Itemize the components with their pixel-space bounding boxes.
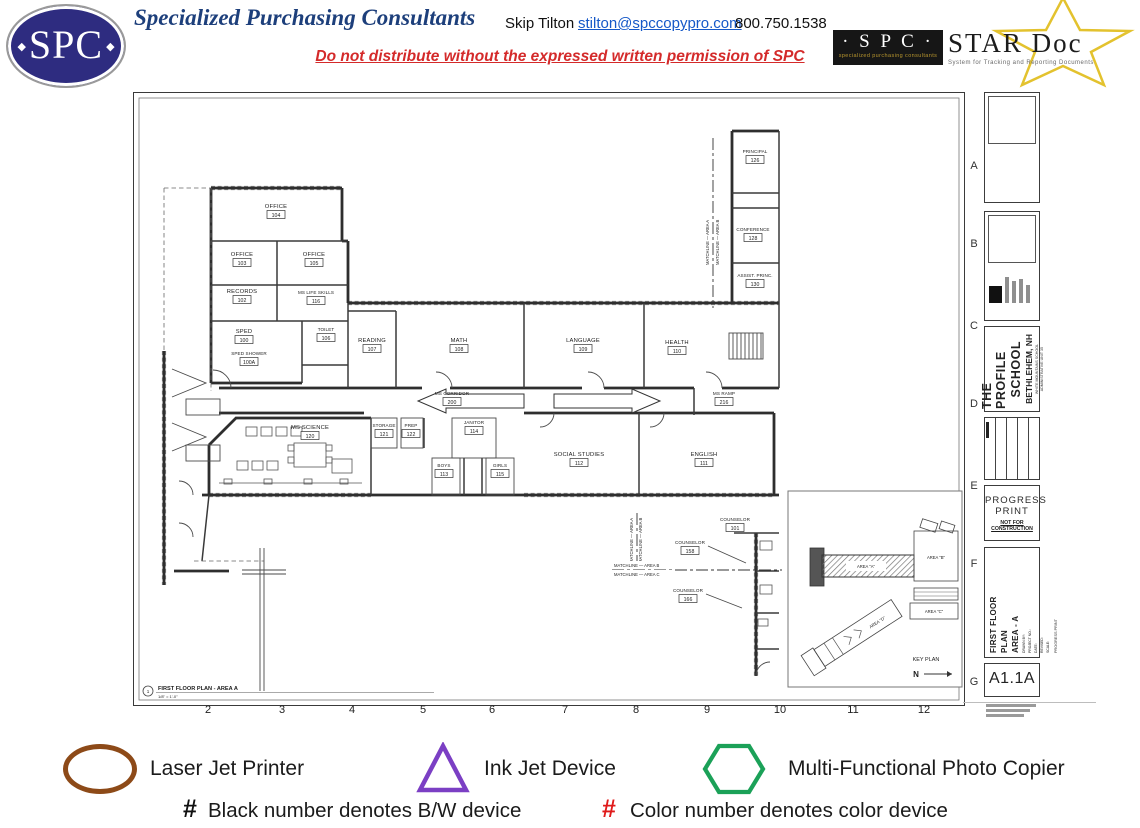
legend-label-laser: Laser Jet Printer [150, 757, 304, 781]
ruler-number: 3 [272, 704, 292, 716]
svg-text:115: 115 [496, 472, 504, 478]
titleblock-project-box: THE PROFILE SCHOOL BETHLEHEM, NH WHITE M… [984, 326, 1040, 412]
project-name-line1: THE PROFILE [980, 329, 1008, 409]
detail-number: 1 [147, 689, 150, 694]
room-labels: OFFICE104 OFFICE103 OFFICE105 RECORDS102… [227, 149, 773, 603]
ruler-number: 4 [342, 704, 362, 716]
room-label: LANGUAGE109 [566, 338, 600, 353]
svg-text:102: 102 [238, 298, 247, 304]
north-label: N [913, 670, 919, 679]
project-name-line2: SCHOOL [1009, 341, 1023, 397]
laser-jet-oval-icon [63, 744, 137, 794]
svg-text:100A: 100A [243, 360, 256, 366]
svg-text:166: 166 [684, 597, 693, 603]
grid-letter: G [966, 676, 982, 688]
svg-text:130: 130 [751, 282, 760, 288]
footer-smudge [986, 704, 1036, 707]
titleblock-stamp-box [984, 92, 1040, 203]
svg-text:101: 101 [731, 526, 740, 532]
svg-text:100: 100 [240, 338, 249, 344]
footer-smudge [986, 714, 1024, 717]
title-block: THE PROFILE SCHOOL BETHLEHEM, NH WHITE M… [984, 92, 1042, 714]
field-scale: SCALE: [1046, 552, 1050, 653]
room-label: ENGLISH111 [691, 452, 718, 467]
room-label: JANITOR114 [464, 420, 485, 435]
architect-text-smudge [1019, 279, 1023, 303]
contact-name: Skip Tilton [505, 15, 574, 32]
stardoc-subtitle: System for Tracking and Reporting Docume… [948, 60, 1094, 66]
stardoc-title: STAR Doc [948, 28, 1083, 59]
svg-text:MS LIFE SKILLS: MS LIFE SKILLS [298, 290, 334, 295]
svg-text:122: 122 [407, 432, 416, 438]
architect-text-smudge [1005, 277, 1009, 303]
key-plan-area-c: AREA "C" [925, 609, 944, 614]
plan-scale: 1/8" = 1'-0" [158, 694, 178, 699]
matchline-label: MATCHLINE — AREA B [638, 517, 643, 563]
svg-text:128: 128 [749, 236, 758, 242]
color-note-text: Color number denotes color device [630, 799, 948, 823]
legend-label-inkjet: Ink Jet Device [484, 757, 616, 781]
titleblock-revisions-box [984, 417, 1040, 480]
plan-title: FIRST FLOOR PLAN - AREA A [158, 686, 238, 692]
svg-text:OFFICE: OFFICE [303, 252, 325, 258]
matchline-label: MATCHLINE — AREA B [614, 563, 660, 568]
sheet-title-line1: FIRST FLOOR [989, 552, 998, 653]
sheet-title-strip: 1 FIRST FLOOR PLAN - AREA A 1/8" = 1'-0" [143, 686, 434, 699]
svg-text:106: 106 [322, 336, 331, 342]
room-label: RECORDS102 [227, 289, 257, 304]
ruler-number: 8 [626, 704, 646, 716]
ruler-number: 11 [843, 704, 863, 716]
key-plan-area-b: AREA "B" [927, 555, 946, 560]
svg-text:TOILET: TOILET [318, 327, 335, 332]
matchline-label: MATCHLINE — AREA A [629, 518, 634, 563]
room-label: SOCIAL STUDIES112 [554, 452, 605, 467]
not-for-construction: NOT FOR CONSTRUCTION [985, 520, 1039, 532]
diamond-icon: ◆ [17, 40, 25, 53]
svg-text:111: 111 [700, 461, 708, 467]
svg-text:107: 107 [368, 347, 377, 353]
room-label: PRINCIPAL126 [743, 149, 768, 164]
key-plan-title: KEY PLAN [913, 657, 940, 663]
svg-text:104: 104 [272, 213, 281, 219]
progress-line1: PROGRESS [985, 495, 1039, 506]
header: ◆ SPC ◆ Specialized Purchasing Consultan… [0, 0, 1140, 92]
svg-text:120: 120 [306, 434, 315, 440]
svg-text:SOCIAL STUDIES: SOCIAL STUDIES [554, 452, 605, 458]
svg-text:216: 216 [720, 400, 729, 406]
legend-label-copier: Multi-Functional Photo Copier [788, 757, 1065, 781]
ruler-number: 2 [198, 704, 218, 716]
svg-text:MATH: MATH [451, 338, 468, 344]
key-plan-area-a: AREA "A" [857, 564, 876, 569]
distribution-warning: Do not distribute without the expressed … [300, 48, 820, 66]
progress-line2: PRINT [985, 506, 1039, 517]
room-label: STORAGE121 [372, 423, 395, 438]
ruler-number: 10 [770, 704, 790, 716]
svg-text:COUNSELOR: COUNSELOR [675, 540, 706, 545]
room-label: MS LIFE SKILLS116 [298, 290, 334, 305]
room-label: COUNSELOR101 [720, 517, 751, 532]
ruler-number: 7 [555, 704, 575, 716]
svg-text:105: 105 [310, 261, 319, 267]
room-label: OFFICE104 [265, 204, 287, 219]
room-label: TOILET106 [317, 327, 335, 342]
plan-walls [164, 131, 779, 691]
svg-text:MS SCIENCE: MS SCIENCE [291, 425, 329, 431]
svg-text:MS CORRIDOR: MS CORRIDOR [435, 391, 470, 396]
svg-text:GIRLS: GIRLS [493, 463, 507, 468]
svg-text:121: 121 [380, 432, 389, 438]
sheet-title-line3: AREA - A [1011, 552, 1020, 653]
svg-text:114: 114 [470, 429, 478, 435]
company-title: Specialized Purchasing Consultants [134, 5, 475, 31]
room-label: GIRLS115 [491, 463, 509, 478]
field-revised: REVISED: [1040, 552, 1044, 653]
color-hash-symbol: # [602, 795, 616, 824]
room-label: CONFERENCE128 [736, 227, 769, 242]
svg-text:COUNSELOR: COUNSELOR [720, 517, 751, 522]
stamp-area [988, 215, 1036, 263]
svg-text:113: 113 [440, 472, 448, 478]
svg-text:LANGUAGE: LANGUAGE [566, 338, 600, 344]
svg-text:109: 109 [579, 347, 588, 353]
sheet-title-line2: PLAN [1000, 552, 1009, 653]
grid-letter: B [966, 238, 982, 250]
svg-text:CONFERENCE: CONFERENCE [736, 227, 769, 232]
photo-copier-hexagon-icon [702, 743, 766, 795]
bw-hash-symbol: # [183, 795, 197, 824]
sheet-number: A1.1A [984, 663, 1040, 697]
ruler-number: 6 [482, 704, 502, 716]
key-plan: AREA "A" AREA "B" AREA "C" AREA "D" KEY … [788, 491, 962, 687]
room-label: HEALTH110 [665, 340, 689, 355]
svg-text:JANITOR: JANITOR [464, 420, 485, 425]
room-label: MS RAMP216 [713, 391, 735, 406]
grid-letter: E [966, 480, 982, 492]
svg-text:108: 108 [455, 347, 464, 353]
bw-note-text: Black number denotes B/W device [208, 799, 521, 823]
architect-logo [989, 286, 1002, 303]
svg-text:SPED: SPED [236, 329, 253, 335]
room-label: READING107 [358, 338, 386, 353]
revisions-label-smudge [986, 422, 989, 438]
grid-letter: A [966, 160, 982, 172]
svg-text:HEALTH: HEALTH [665, 340, 689, 346]
room-label: ASSIST. PRINC.130 [737, 273, 772, 288]
room-label: MATH108 [450, 338, 468, 353]
svg-text:COUNSELOR: COUNSELOR [673, 588, 704, 593]
room-label: SPED SHOWER100A [231, 351, 267, 366]
svg-text:103: 103 [238, 261, 247, 267]
ink-jet-triangle-icon [416, 742, 470, 794]
svg-text:OFFICE: OFFICE [265, 204, 287, 210]
room-label: SPED100 [235, 329, 253, 344]
svg-text:158: 158 [686, 549, 695, 555]
project-city: BETHLEHEM, NH [1024, 334, 1034, 404]
page: ◆ SPC ◆ Specialized Purchasing Consultan… [0, 0, 1140, 828]
room-label: COUNSELOR166 [673, 588, 704, 603]
svg-text:OFFICE: OFFICE [231, 252, 253, 258]
matchline-label: MATCHLINE — AREA B [715, 219, 720, 265]
svg-text:112: 112 [575, 461, 583, 467]
floor-plan-sheet: MATCHLINE — AREA A MATCHLINE — AREA B MA… [133, 92, 965, 706]
svg-text:ASSIST. PRINC.: ASSIST. PRINC. [737, 273, 772, 278]
room-label: BOYS113 [435, 463, 453, 478]
room-label: PREP122 [402, 423, 420, 438]
stardoc-spc-badge: · S P C · specialized purchasing consult… [833, 30, 943, 65]
architect-text-smudge [1026, 285, 1030, 303]
room-label: MS SCIENCE120 [291, 425, 329, 440]
titleblock-architect-box [984, 211, 1040, 321]
svg-text:126: 126 [751, 158, 760, 164]
ruler-number: 9 [697, 704, 717, 716]
room-label: COUNSELOR158 [675, 540, 706, 555]
spc-logo-text: SPC [29, 21, 103, 68]
stamp-area [988, 96, 1036, 144]
contact-email-link[interactable]: stilton@spccopypro.com [578, 15, 742, 32]
svg-text:110: 110 [673, 349, 681, 355]
spc-logo: ◆ SPC ◆ [6, 4, 126, 88]
field-date: DATE: [1034, 552, 1038, 653]
titleblock-sheet-title-box: FIRST FLOOR PLAN AREA - A DRAWN BY: PROJ… [984, 547, 1040, 658]
svg-text:SPED SHOWER: SPED SHOWER [231, 351, 267, 356]
svg-text:RECORDS: RECORDS [227, 289, 257, 295]
project-sub2: ADMINISTRATIVE UNIT 35 [1040, 347, 1044, 391]
svg-text:PREP: PREP [405, 423, 418, 428]
ruler-number: 12 [914, 704, 934, 716]
architect-text-smudge [1012, 281, 1016, 303]
matchline-label: MATCHLINE — AREA A [705, 220, 710, 265]
svg-text:MS RAMP: MS RAMP [713, 391, 735, 396]
project-sub1: WHITE MOUNTAINS SCHOOL [1035, 344, 1039, 394]
contact-phone: 800.750.1538 [735, 15, 827, 32]
svg-text:PRINCIPAL: PRINCIPAL [743, 149, 768, 154]
stardoc-spc-subtext: specialized purchasing consultants [833, 53, 943, 59]
room-label: OFFICE105 [303, 252, 325, 267]
svg-text:READING: READING [358, 338, 386, 344]
footer-smudge [986, 709, 1030, 712]
progress-print-note: PROGRESS PRINT [1054, 552, 1058, 653]
ruler-number: 5 [413, 704, 433, 716]
svg-text:200: 200 [448, 400, 457, 406]
titleblock-progress-box: PROGRESS PRINT NOT FOR CONSTRUCTION [984, 485, 1040, 541]
svg-text:ENGLISH: ENGLISH [691, 452, 718, 458]
stardoc-spc-text: · S P C · [833, 30, 943, 53]
matchlines: MATCHLINE — AREA A MATCHLINE — AREA B MA… [612, 138, 782, 577]
field-project-no: PROJECT NO.: [1028, 552, 1032, 653]
field-drawn-by: DRAWN BY: [1022, 552, 1026, 653]
diamond-icon: ◆ [106, 40, 114, 53]
room-label: OFFICE103 [231, 252, 253, 267]
stairs-icon [729, 333, 763, 359]
svg-text:BOYS: BOYS [437, 463, 450, 468]
grid-letter: F [966, 558, 982, 570]
floor-plan-drawing: MATCHLINE — AREA A MATCHLINE — AREA B MA… [134, 93, 964, 705]
svg-text:116: 116 [312, 299, 320, 305]
svg-text:STORAGE: STORAGE [372, 423, 395, 428]
matchline-label: MATCHLINE — AREA C [614, 572, 660, 577]
